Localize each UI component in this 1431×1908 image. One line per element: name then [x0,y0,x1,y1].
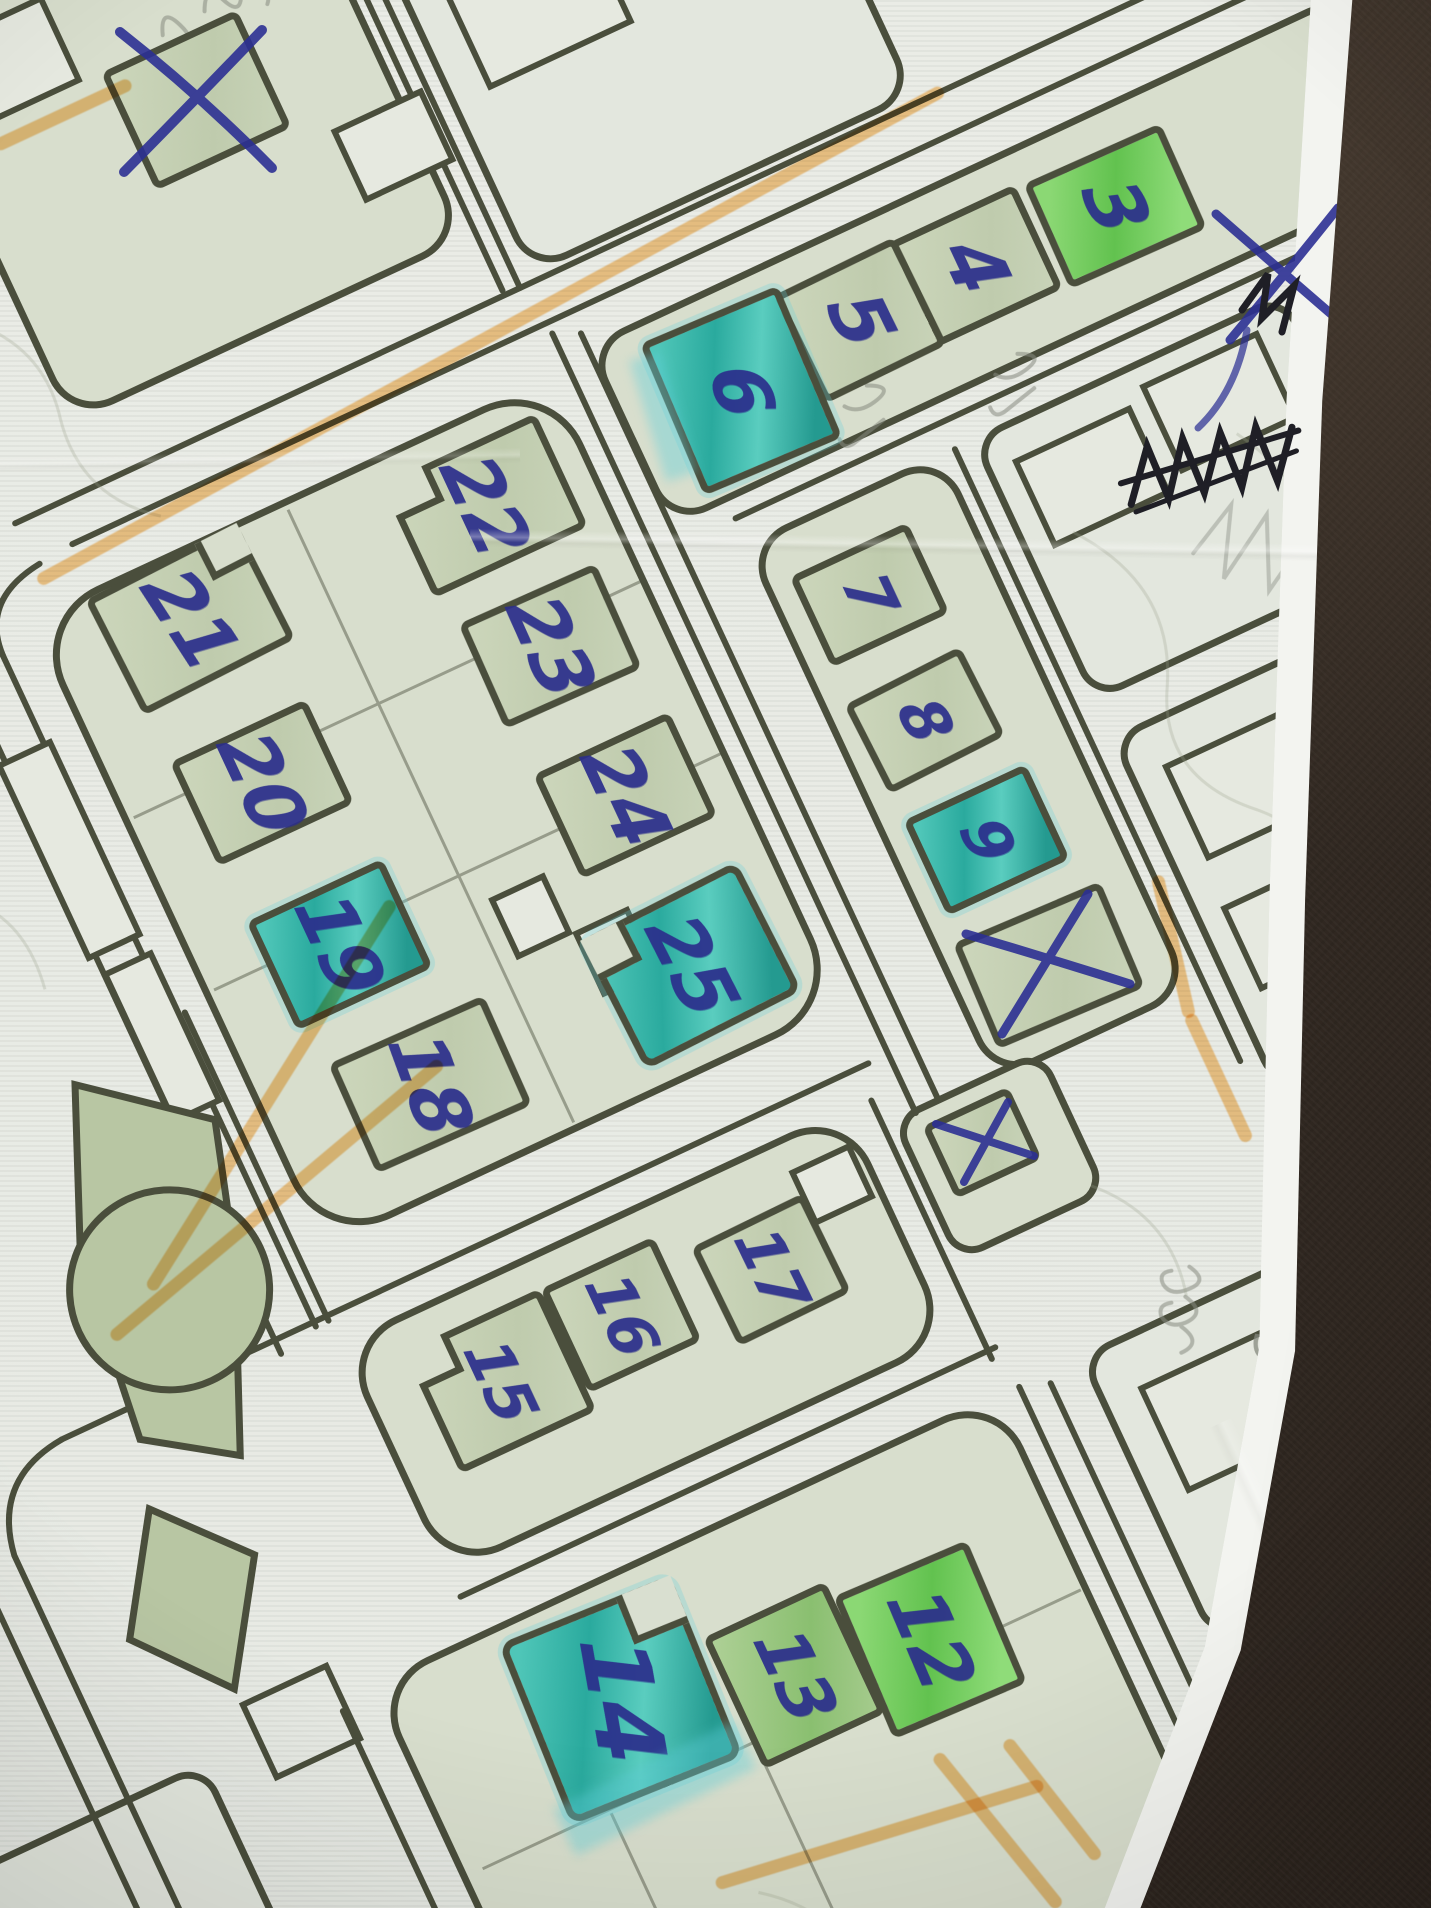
handwritten-number-24: 24 [567,735,684,856]
handwritten-number-17: 17 [723,1220,819,1319]
pencil-scratch [1311,916,1403,998]
handwritten-number-22: 22 [426,445,543,566]
map-rotated-plane: 500 3 4 5 6 7 8 9 12 13 14 15 16 17 18 1… [0,0,1431,1908]
paper-sheet: 500 3 4 5 6 7 8 9 12 13 14 15 16 17 18 1… [0,0,1431,1908]
green-building-bottom-left [83,1477,302,1720]
contour-line [0,870,47,1012]
handwritten-number-25: 25 [631,905,750,1027]
handwritten-number-23: 23 [492,586,608,706]
pencil-scratch [1364,598,1431,702]
handwritten-number-15: 15 [452,1332,547,1430]
handwritten-number-9: 9 [948,810,1026,871]
handwritten-number-5: 5 [813,283,908,357]
building-outline [1298,611,1431,770]
handwritten-number-12: 12 [873,1580,987,1700]
map-print-area: 500 3 4 5 6 7 8 9 12 13 14 15 16 17 18 1… [0,0,1431,1908]
handwritten-number-3: 3 [1068,170,1162,242]
block-bottom-right [1083,1226,1431,1638]
handwritten-number-13: 13 [741,1620,849,1731]
handwritten-number-16: 16 [573,1266,668,1364]
pencil-distance-note: 500 [1241,1332,1304,1450]
handwritten-number-18: 18 [375,1026,485,1144]
paper-crease [1209,1417,1410,1809]
handwritten-number-21: 21 [127,558,253,681]
block-bottom-left [0,1765,308,1908]
handwritten-number-7: 7 [831,565,908,624]
photo-of-annotated-paper-map: 500 3 4 5 6 7 8 9 12 13 14 15 16 17 18 1… [0,0,1431,1908]
handwritten-number-20: 20 [204,722,321,843]
handwritten-number-19: 19 [281,884,398,1005]
handwritten-number-8: 8 [886,690,964,751]
handwritten-number-4: 4 [928,229,1023,302]
handwritten-number-14: 14 [564,1634,679,1767]
building-outline [243,1666,360,1777]
handwritten-number-6: 6 [696,358,786,423]
